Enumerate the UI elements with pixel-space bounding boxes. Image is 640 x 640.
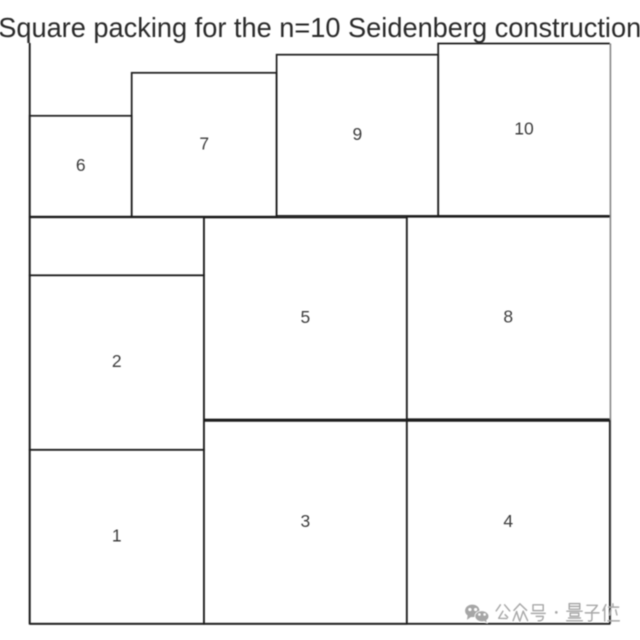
svg-text:10: 10: [514, 118, 534, 138]
svg-text:2: 2: [112, 351, 122, 371]
svg-text:3: 3: [301, 511, 311, 531]
svg-text:8: 8: [503, 307, 513, 327]
svg-text:7: 7: [199, 133, 209, 153]
svg-text:Square packing for the n=10 Se: Square packing for the n=10 Seidenberg c…: [0, 12, 640, 43]
svg-text:4: 4: [503, 511, 513, 531]
svg-text:1: 1: [112, 525, 122, 545]
svg-text:9: 9: [353, 124, 363, 144]
svg-text:5: 5: [301, 307, 311, 327]
svg-text:6: 6: [76, 155, 86, 175]
